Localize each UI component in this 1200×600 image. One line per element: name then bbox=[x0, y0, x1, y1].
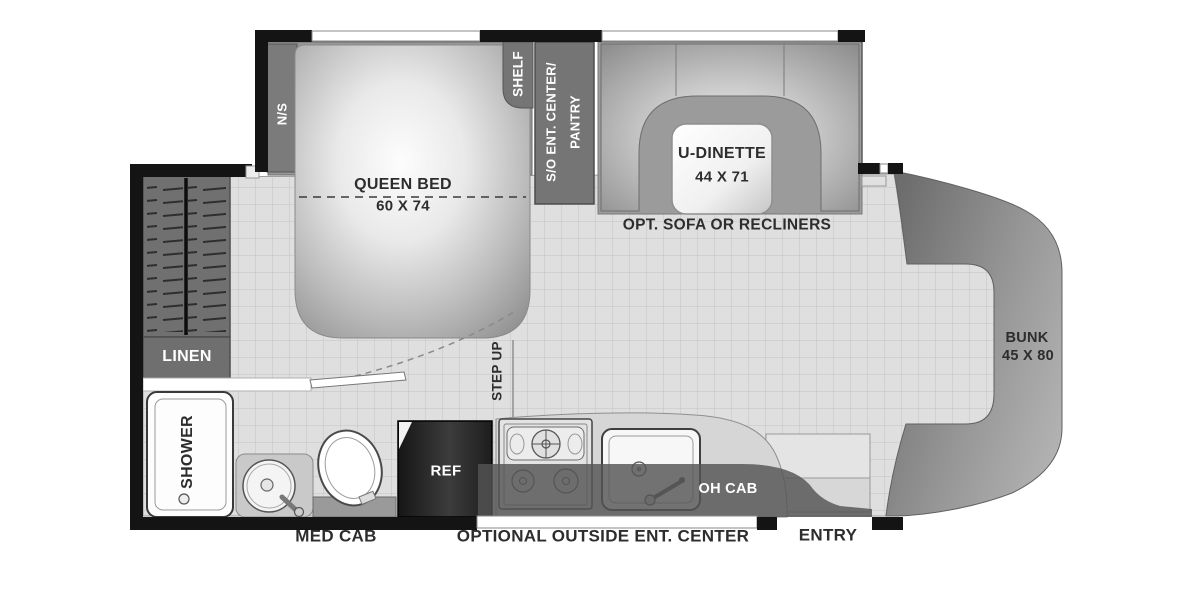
floorplan-drawing bbox=[0, 0, 1200, 600]
queen-bed-size-label: 60 X 74 bbox=[376, 199, 430, 214]
queen-bed-label: QUEEN BED bbox=[354, 177, 452, 193]
pantry-label-line2: PANTRY bbox=[569, 95, 582, 149]
shelf-label: SHELF bbox=[511, 51, 525, 97]
bedroom-window bbox=[312, 31, 480, 41]
outside-ent-label: OPTIONAL OUTSIDE ENT. CENTER bbox=[457, 528, 749, 545]
dinette-size-label: 44 X 71 bbox=[695, 170, 749, 185]
bunk-label: BUNK bbox=[1005, 331, 1048, 346]
step-up-label: STEP UP bbox=[490, 341, 504, 401]
dinette-slide bbox=[598, 42, 862, 214]
bathroom-vanity-sink bbox=[236, 454, 313, 517]
entry-label: ENTRY bbox=[799, 527, 858, 544]
linen-label: LINEN bbox=[162, 349, 212, 365]
med-cab-label: MED CAB bbox=[295, 528, 376, 545]
ref-label: REF bbox=[431, 464, 462, 479]
oh-cab-label: OH CAB bbox=[699, 482, 758, 497]
rv-floorplan: QUEEN BED 60 X 74 N/S SHELF S/O ENT. CEN… bbox=[0, 0, 1200, 600]
pantry-label-line1: S/O ENT. CENTER/ bbox=[545, 62, 558, 182]
sofa-option-label: OPT. SOFA OR RECLINERS bbox=[623, 217, 831, 233]
dinette-label: U-DINETTE bbox=[678, 146, 766, 162]
bath-partition bbox=[143, 378, 311, 391]
wardrobe bbox=[143, 176, 230, 337]
dinette-window bbox=[602, 31, 838, 41]
nightstand-label: N/S bbox=[276, 103, 289, 126]
bunk-size-label: 45 X 80 bbox=[1002, 349, 1054, 364]
shower-label: SHOWER bbox=[180, 415, 196, 489]
